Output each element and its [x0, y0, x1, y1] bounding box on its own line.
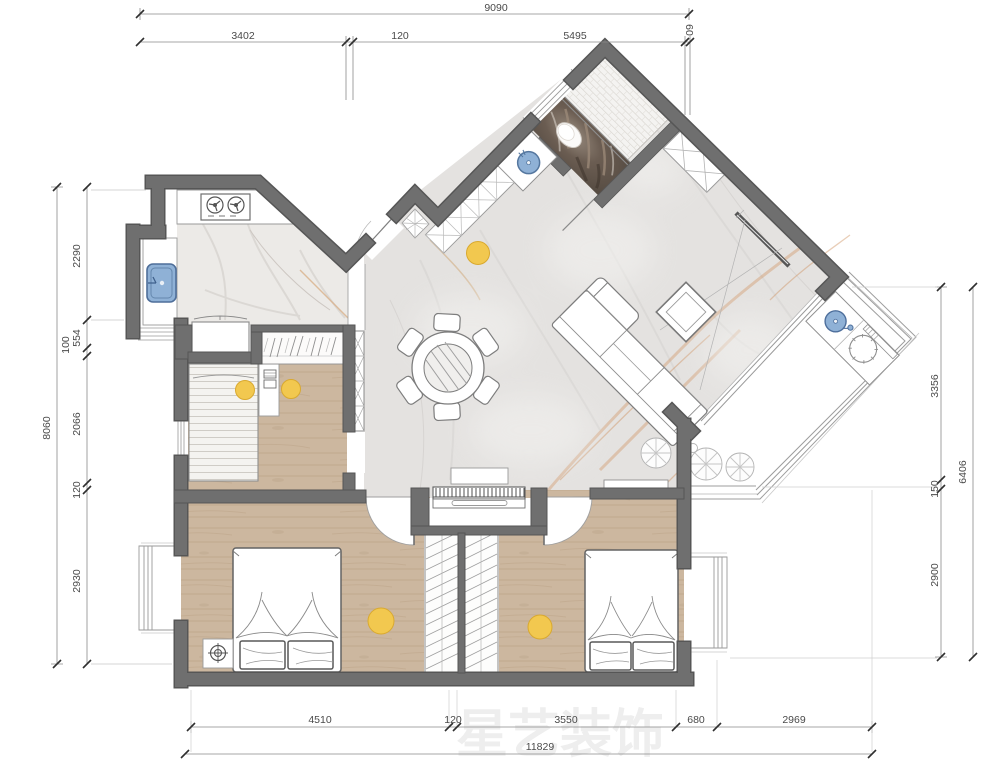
svg-text:5495: 5495 — [563, 30, 587, 42]
svg-text:3356: 3356 — [929, 374, 941, 398]
svg-text:3402: 3402 — [231, 30, 255, 42]
svg-text:100: 100 — [60, 336, 72, 354]
svg-text:680: 680 — [687, 714, 705, 726]
svg-text:2969: 2969 — [782, 714, 806, 726]
svg-text:60: 60 — [683, 24, 695, 36]
svg-text:11829: 11829 — [526, 741, 555, 753]
svg-text:6406: 6406 — [957, 460, 969, 484]
svg-text:2930: 2930 — [71, 569, 83, 593]
svg-text:3550: 3550 — [554, 714, 578, 726]
svg-text:120: 120 — [444, 714, 462, 726]
svg-text:554: 554 — [71, 329, 83, 347]
svg-text:120: 120 — [391, 30, 409, 42]
svg-text:8060: 8060 — [41, 416, 53, 440]
svg-text:120: 120 — [71, 481, 83, 499]
svg-text:2290: 2290 — [71, 244, 83, 268]
svg-text:9090: 9090 — [484, 2, 508, 14]
svg-text:4510: 4510 — [308, 714, 332, 726]
svg-text:2066: 2066 — [71, 412, 83, 436]
svg-text:2900: 2900 — [929, 563, 941, 587]
svg-text:150: 150 — [929, 480, 941, 498]
